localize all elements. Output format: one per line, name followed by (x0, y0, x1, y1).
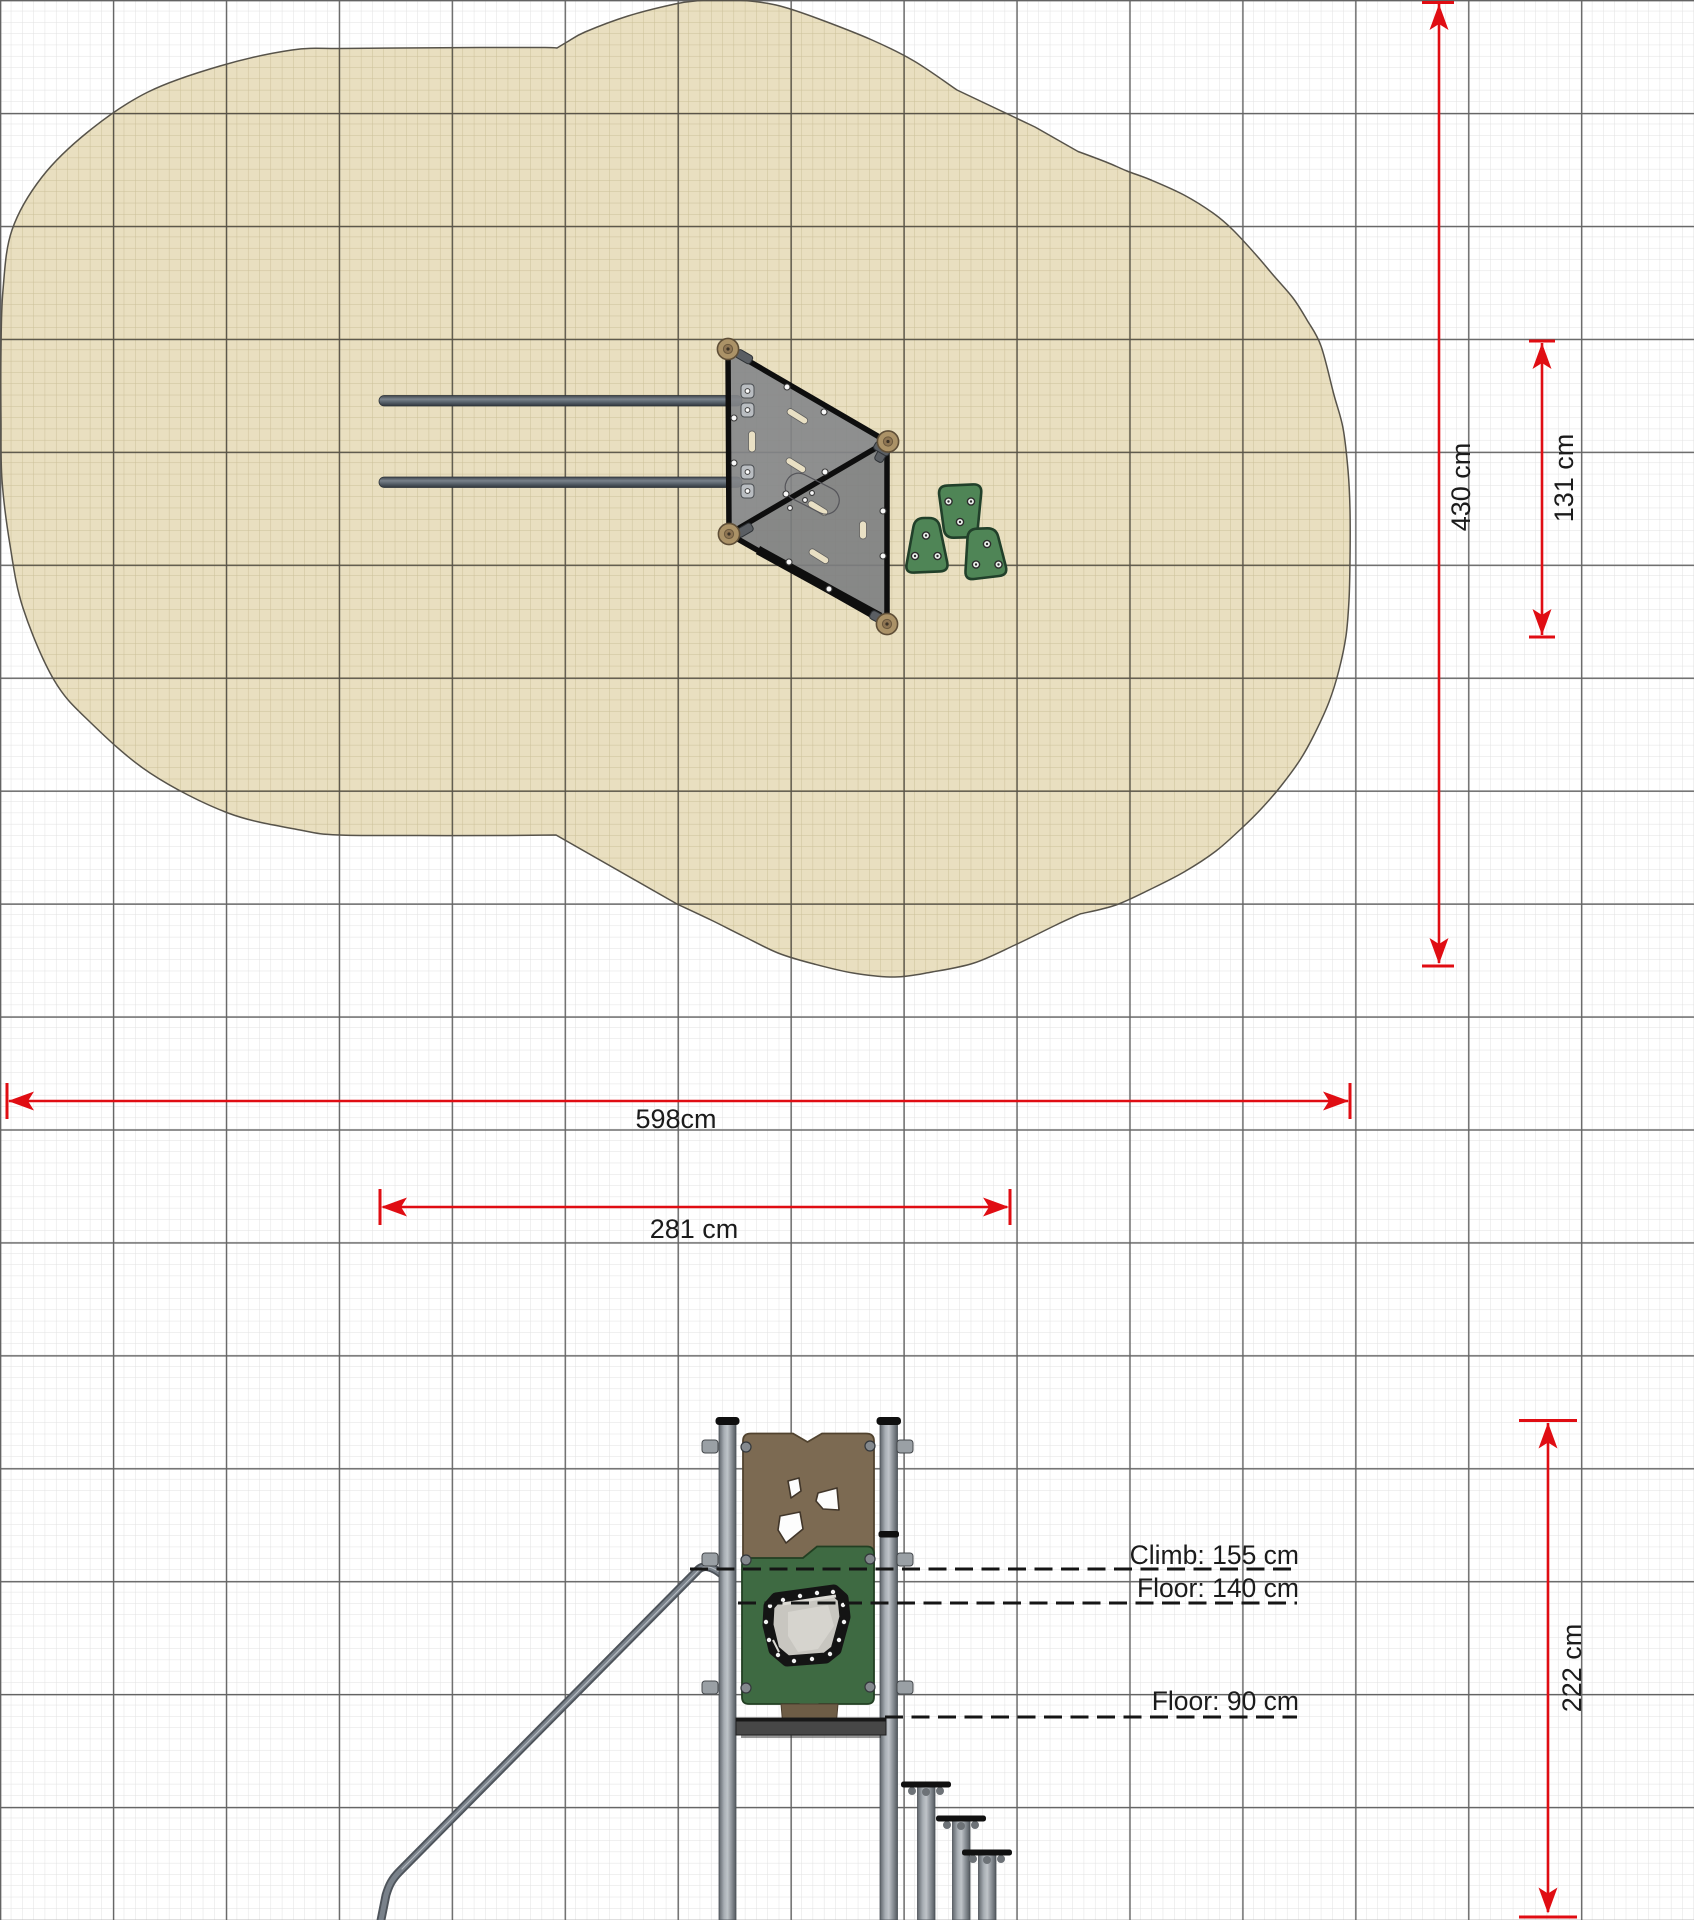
svg-text:Climb: 155 cm: Climb: 155 cm (1130, 1540, 1299, 1570)
svg-text:131 cm: 131 cm (1549, 434, 1579, 523)
svg-text:222 cm: 222 cm (1557, 1624, 1587, 1713)
svg-text:Floor: 90 cm: Floor: 90 cm (1152, 1686, 1299, 1716)
svg-text:Floor: 140 cm: Floor: 140 cm (1137, 1573, 1299, 1603)
svg-text:598cm: 598cm (635, 1104, 716, 1134)
svg-text:430 cm: 430 cm (1446, 443, 1476, 532)
svg-text:281 cm: 281 cm (650, 1214, 739, 1244)
